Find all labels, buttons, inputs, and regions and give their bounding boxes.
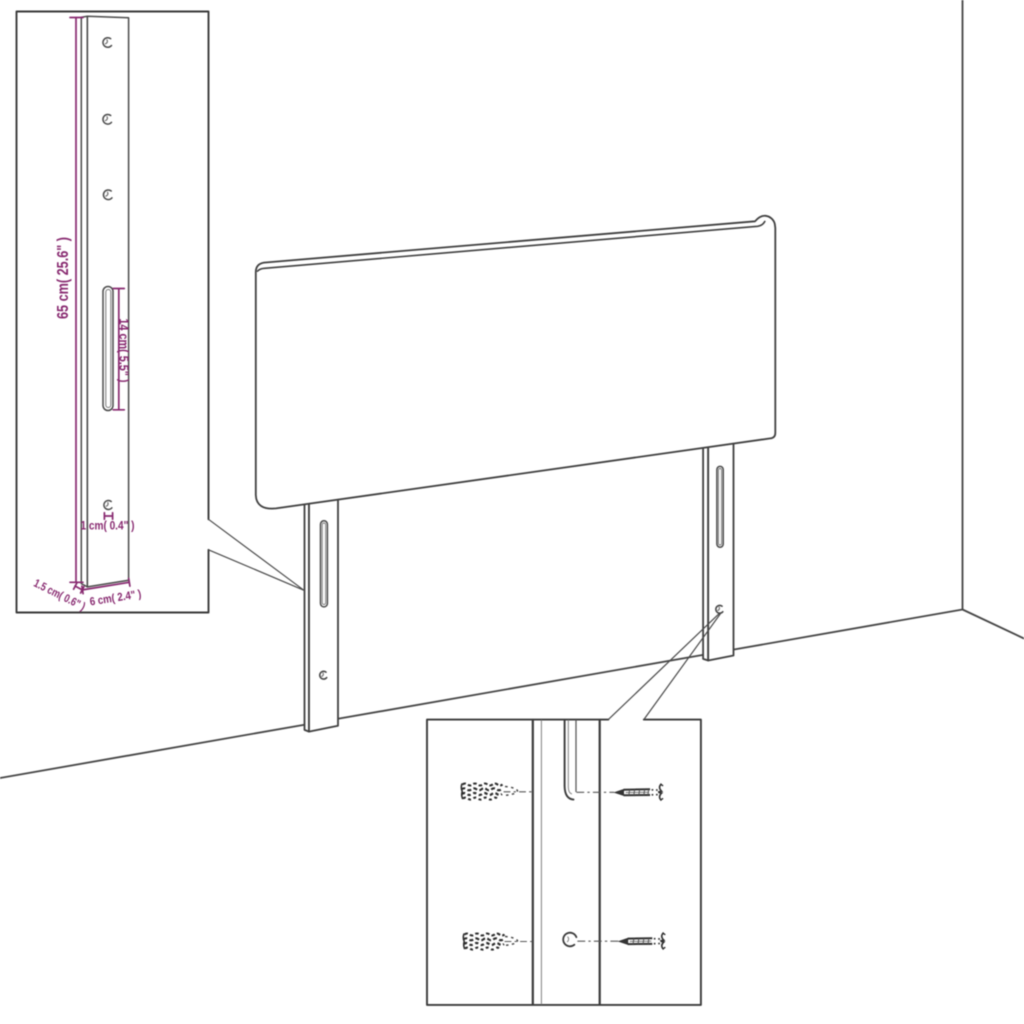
svg-text:14 cm( 5.5" ): 14 cm( 5.5" ) [117,319,132,383]
svg-text:1 cm( 0.4" ): 1 cm( 0.4" ) [81,519,135,533]
svg-text:65 cm( 25.6" ): 65 cm( 25.6" ) [55,237,72,319]
svg-text:6 cm( 2.4" ): 6 cm( 2.4" ) [89,588,142,608]
